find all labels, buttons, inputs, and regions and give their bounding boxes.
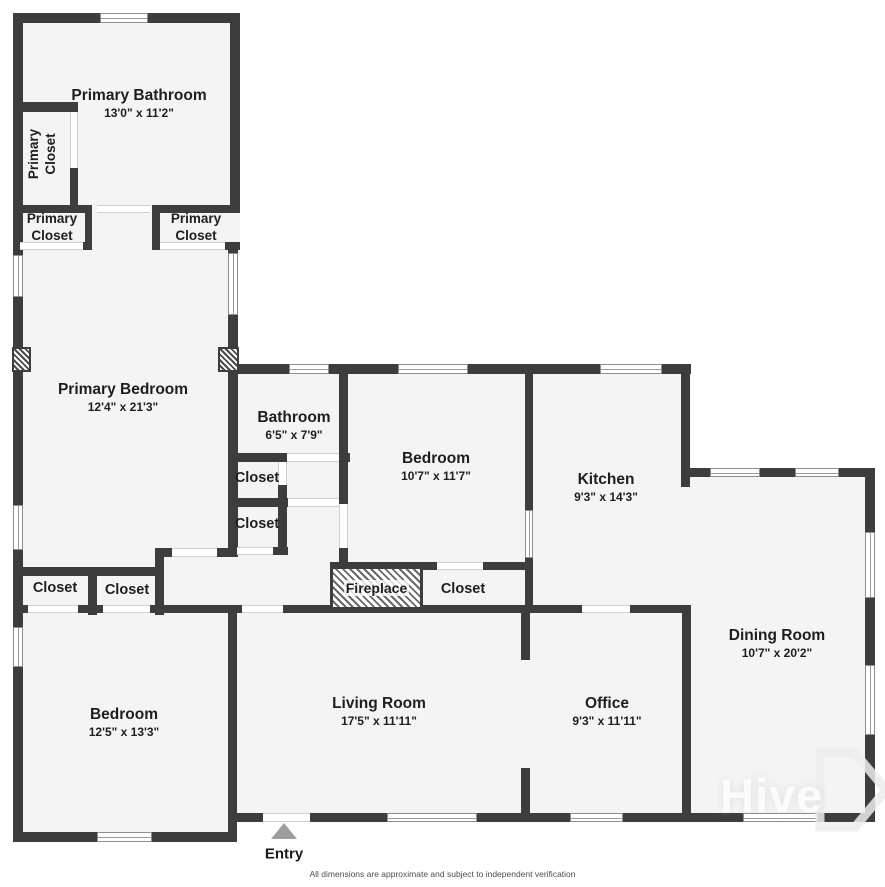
door-opening [242,605,283,613]
floor-area [13,250,238,615]
fireplace: Fireplace [330,566,423,610]
wall [228,371,238,455]
window [97,832,152,842]
window [387,813,477,822]
room-label-primary-bathroom: Primary Bathroom 13'0" x 11'2" [71,87,206,121]
label-closet-hall-lower: Closet [235,516,279,532]
door-opening [437,562,483,570]
label-closet-bedroom-b: Closet [105,582,149,598]
window [228,253,238,315]
door-opening [97,205,150,213]
fireplace-label: Fireplace [344,580,409,596]
wall [283,605,582,613]
wall [521,768,530,822]
wall [521,605,530,660]
post-marker [12,347,31,372]
window [100,13,148,23]
door-opening [582,605,630,613]
room-label-dining-room: Dining Room 10'7" x 20'2" [729,627,825,661]
wall [228,605,237,842]
hive-watermark: Hive [720,768,823,823]
door-opening [172,548,217,557]
label-closet-hall-upper: Closet [235,470,279,486]
label-closet-bedroom-a: Closet [33,580,77,596]
door-opening [237,547,273,555]
door-opening [288,498,339,507]
window [398,364,468,374]
entry-door-opening [263,813,310,822]
post-marker [218,347,239,372]
floor-plan: Fireplace Primary Bathroom 13'0" x 11'2"… [0,0,885,887]
door-opening [339,504,348,548]
entry-label: Entry [265,846,303,863]
wall [85,205,92,250]
window [865,665,875,735]
label-primary-closet-right: Primary Closet [171,210,221,244]
wall [152,205,160,250]
window [289,364,329,374]
door-opening [103,605,150,613]
room-label-primary-bedroom: Primary Bedroom 12'4" x 21'3" [58,381,188,415]
wall [230,13,240,205]
wall [155,548,164,615]
room-label-bathroom: Bathroom 6'5" x 7'9" [257,409,330,443]
wall [88,567,97,615]
window [525,510,533,558]
wall [525,364,533,613]
room-label-living-room: Living Room 17'5" x 11'11" [332,695,426,729]
window [13,627,23,667]
wall [18,102,78,112]
label-closet-fireplace: Closet [441,581,485,597]
door-opening [287,453,339,462]
window [13,255,23,297]
window [13,505,23,550]
wall [13,13,23,842]
label-primary-closet-vertical: Primary Closet [25,129,59,179]
wall [228,453,238,555]
label-primary-closet-left: Primary Closet [27,210,77,244]
wall [339,548,348,568]
window [600,364,662,374]
window [865,532,875,598]
room-label-office: Office 9'3" x 11'11" [572,695,641,729]
entry-arrow-icon [271,823,297,839]
door-opening [28,605,78,613]
room-label-bedroom-lower: Bedroom 12'5" x 13'3" [89,706,159,740]
disclaimer-text: All dimensions are approximate and subje… [0,869,885,879]
window [570,813,623,822]
wall [681,364,690,487]
room-label-bedroom-middle: Bedroom 10'7" x 11'7" [401,450,471,484]
window [710,468,760,477]
wall [682,605,691,822]
room-label-kitchen: Kitchen 9'3" x 14'3" [574,471,638,505]
door-opening [278,462,287,485]
wall [339,364,348,504]
window [795,468,839,477]
